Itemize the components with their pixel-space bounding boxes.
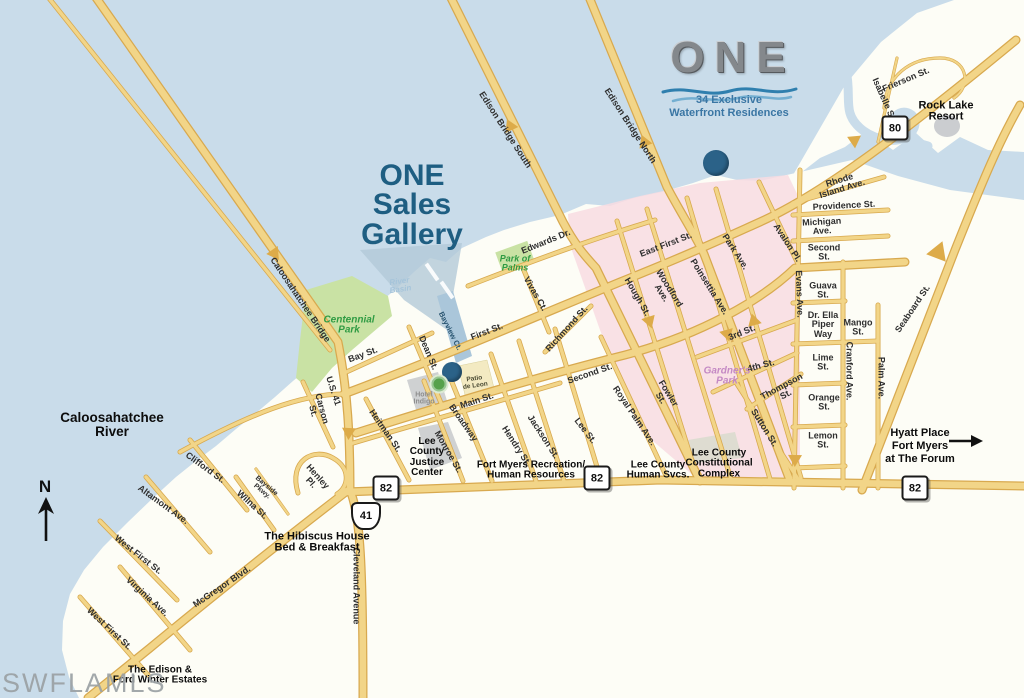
route-badge-fl-80: 80 xyxy=(882,116,909,141)
route-badge-fl-82: 82 xyxy=(584,466,611,491)
route-badge-fl-82: 82 xyxy=(373,476,400,501)
title-line2: Sales xyxy=(373,188,451,221)
fort-myers-area-map[interactable]: Frierson St.Isabelle St.Rock Lake Resort… xyxy=(0,0,1024,698)
sales-gallery-title: ONESalesGallery xyxy=(361,161,463,249)
hyatt-line2: Fort Myers xyxy=(892,440,948,452)
hotel-indigo-marker xyxy=(430,375,449,394)
tagline-line2: Waterfront Residences xyxy=(669,107,788,119)
route-badge-fl-82: 82 xyxy=(902,476,929,501)
route-badge-us-41: 41 xyxy=(351,502,381,530)
map-geography xyxy=(0,0,1024,698)
tagline-line1: 34 Exclusive xyxy=(696,94,762,106)
hyatt-place-note: Hyatt PlaceFort Myersat The Forum xyxy=(885,427,955,467)
swflamls-watermark: SWFLAMLS xyxy=(2,668,167,698)
one-residences-site-marker xyxy=(703,150,729,176)
title-line3: Gallery xyxy=(361,218,463,251)
hyatt-line1: Hyatt Place xyxy=(890,427,949,439)
north-arrow-icon xyxy=(35,497,57,543)
logo-tagline: 34 ExclusiveWaterfront Residences xyxy=(669,94,788,120)
hyatt-arrow-icon xyxy=(948,433,984,449)
one-logo: ONE xyxy=(660,33,795,83)
rock-lake-resort-building xyxy=(934,115,960,137)
title-line1: ONE xyxy=(379,159,444,192)
hyatt-line3: at The Forum xyxy=(885,454,955,466)
north-label: N xyxy=(39,477,51,497)
